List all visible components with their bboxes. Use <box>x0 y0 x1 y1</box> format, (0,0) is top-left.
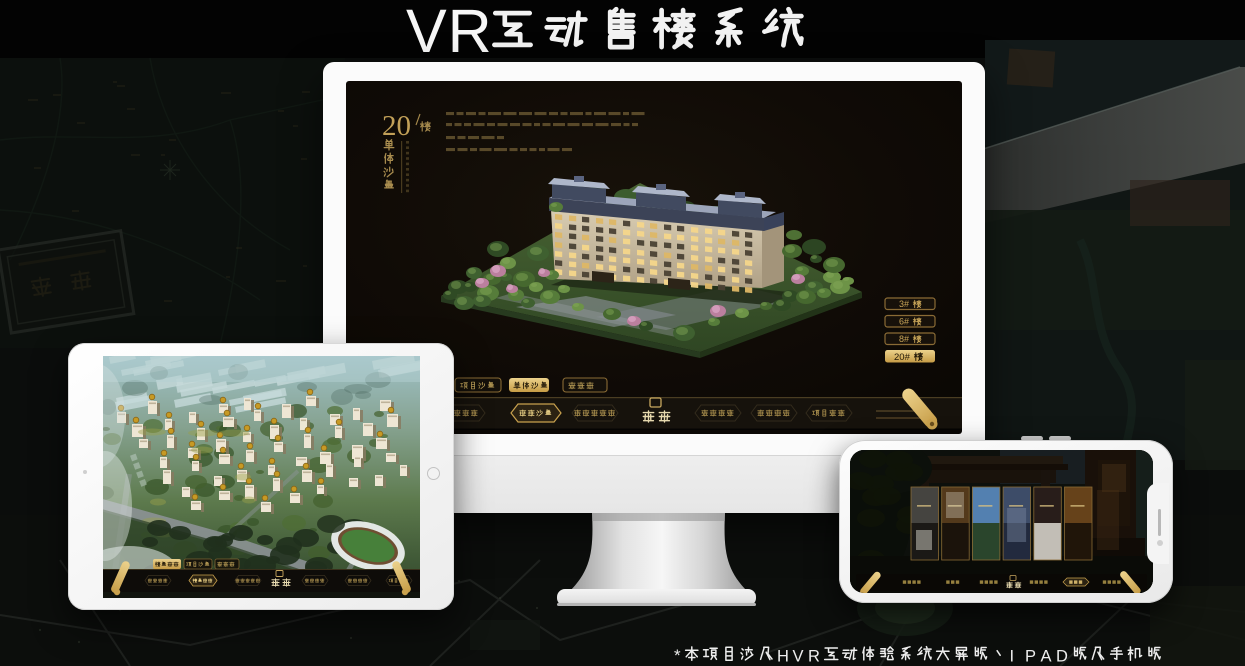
svg-text:20: 20 <box>382 110 411 142</box>
svg-text:3#: 3# <box>899 299 909 309</box>
svg-text:D: D <box>1056 648 1068 666</box>
svg-text:I: I <box>1010 648 1015 666</box>
svg-text:8#: 8# <box>899 334 909 344</box>
svg-text:P: P <box>1025 648 1036 666</box>
svg-text:6#: 6# <box>899 317 909 327</box>
svg-text:*: * <box>674 646 681 665</box>
svg-text:20#: 20# <box>894 352 911 363</box>
svg-text:VR: VR <box>406 0 493 60</box>
svg-text:A: A <box>1041 648 1052 666</box>
svg-text:V: V <box>793 648 804 666</box>
svg-text:H: H <box>777 648 789 666</box>
svg-text:R: R <box>808 648 820 666</box>
